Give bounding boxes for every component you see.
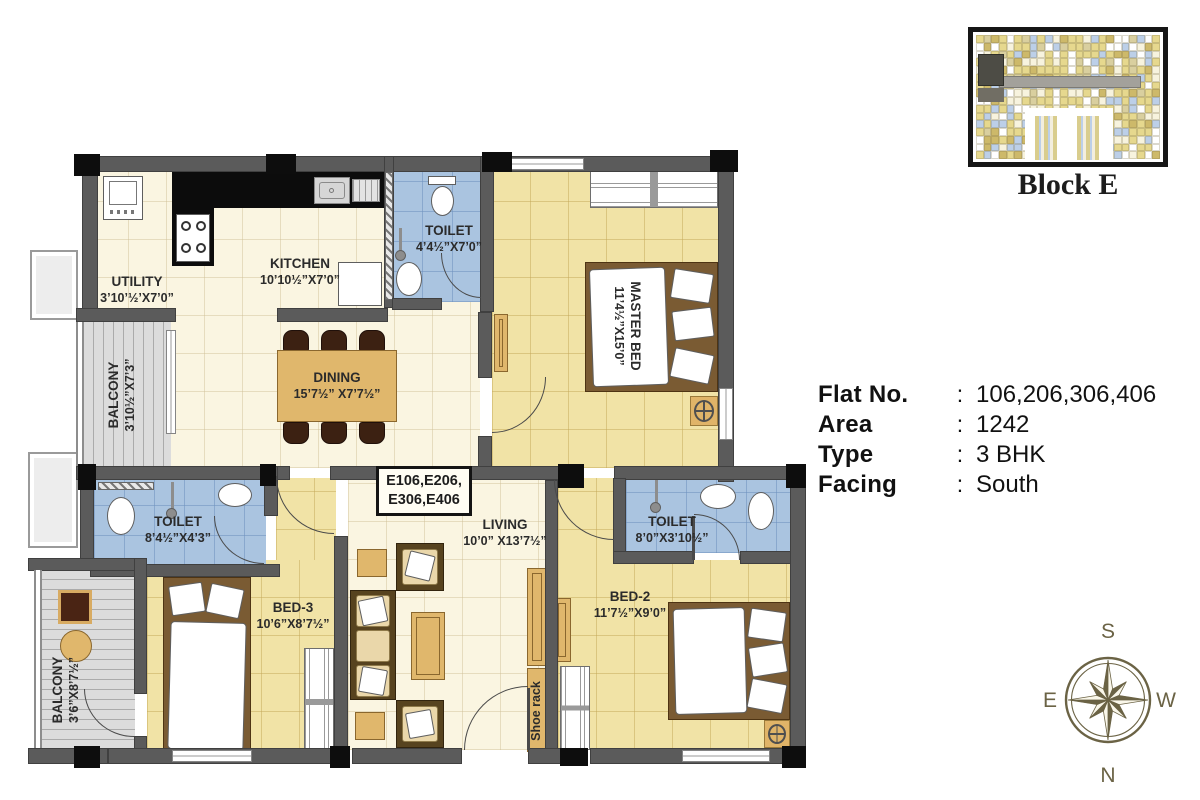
drainboard-icon (352, 179, 380, 202)
room-name: UTILITY (112, 274, 163, 291)
room-label-master-bed: MASTER BED 11’4½”X15’0” (607, 266, 647, 386)
unit-number-box: E106,E206, E306,E406 (376, 466, 472, 516)
fan-icon (690, 396, 718, 426)
column (710, 150, 738, 172)
window-ledge (28, 452, 78, 548)
window (682, 750, 770, 762)
vent-hatch (98, 482, 154, 490)
room-label-utility: UTILITY 3’10’½’X7’0” (77, 272, 197, 308)
wall (28, 558, 138, 571)
dining-chair-icon (359, 330, 385, 352)
window-ledge (30, 250, 78, 320)
room-label-kitchen: KITCHEN 10’10½”X7’0” (240, 252, 360, 292)
info-label: Facing (818, 471, 944, 499)
info-colon: : (944, 441, 976, 468)
wall (76, 156, 736, 172)
room-name: BALCONY (106, 362, 123, 429)
room-label-balcony-left: BALCONY 3’10½”X7’3” (105, 340, 139, 450)
room-dims: 8’4½”X4’3” (145, 531, 211, 547)
window (172, 750, 252, 762)
info-colon: : (944, 381, 976, 408)
wc-icon (431, 186, 454, 216)
info-colon: : (944, 411, 976, 438)
compass-rose: S E W N (1038, 608, 1178, 788)
column (74, 154, 100, 176)
column (330, 746, 350, 768)
room-dims: 4’4½”X7’0” (416, 240, 482, 256)
armchair-icon (396, 543, 444, 591)
room-name: LIVING (482, 517, 527, 534)
room-label-toilet-right: TOILET 8’0”X3’10½” (612, 512, 732, 548)
wardrobe-icon (304, 648, 334, 756)
compass-north-label: N (1100, 764, 1115, 787)
room-label-toilet-left: TOILET 8’4½”X4’3” (118, 512, 238, 548)
unit-numbers-line1: E106,E206, (386, 472, 462, 491)
dining-chair-icon (283, 422, 309, 444)
tower-wing (1077, 116, 1099, 160)
kitchen-sink-icon (314, 177, 350, 204)
room-name: TOILET (154, 514, 202, 531)
info-label: Area (818, 411, 944, 439)
coffee-table-icon (411, 612, 445, 680)
wall (76, 466, 290, 480)
room-label-living: LIVING 10’0” X13’7½” (440, 514, 570, 552)
room-dims: 10’10½”X7’0” (260, 273, 340, 289)
room-label-bed2: BED-2 11’7½”X9’0” (570, 586, 690, 624)
shoe-rack-text: Shoe rack (529, 681, 545, 741)
balcony-railing (76, 322, 84, 468)
block-title: Block E (988, 168, 1148, 202)
balcony-railing (34, 570, 42, 750)
fan-icon (764, 720, 790, 748)
unit-numbers-line2: E306,E406 (388, 491, 460, 510)
shower-icon (171, 482, 174, 510)
compass-south-label: S (1101, 620, 1115, 643)
room-dims: 3’10’½’X7’0” (100, 291, 174, 307)
room-name: BED-2 (610, 589, 651, 606)
room-name: KITCHEN (270, 256, 330, 273)
planter-icon (58, 590, 92, 624)
column (482, 152, 512, 172)
armchair-icon (396, 700, 444, 748)
tower-wing (1035, 116, 1057, 160)
wall (334, 536, 348, 760)
column (786, 464, 806, 488)
room-dims: 10’6”X8’7½” (257, 617, 330, 633)
room-name: MASTER BED (626, 281, 643, 370)
wall-shelf (494, 314, 508, 372)
info-label: Type (818, 441, 944, 469)
floorplan-page: UTILITY 3’10’½’X7’0” KITCHEN 10’10½”X7’0… (0, 0, 1200, 800)
info-value: 3 BHK (976, 441, 1163, 469)
wall (614, 466, 792, 480)
room-name: DINING (313, 370, 360, 387)
washbasin-icon (396, 262, 422, 296)
corridor-band (999, 76, 1141, 88)
info-row-facing: Facing : South (818, 471, 1163, 501)
block-site-map (968, 27, 1168, 167)
tv-unit-icon (527, 568, 547, 666)
info-row-flat-no: Flat No. : 106,206,306,406 (818, 381, 1163, 411)
room-dims: 15’7½” X7’7½” (294, 387, 381, 403)
info-row-area: Area : 1242 (818, 411, 1163, 441)
info-value: South (976, 471, 1163, 499)
info-label: Flat No. (818, 381, 944, 409)
wall (392, 298, 442, 310)
wall (478, 312, 492, 378)
room-label-toilet-top: TOILET 4’4½”X7’0” (389, 222, 509, 256)
room-label-dining: DINING 15’7½” X7’7½” (277, 364, 397, 408)
washbasin-icon (700, 484, 736, 509)
room-dims: 3’6”X8’7½” (67, 657, 83, 723)
shower-icon (655, 480, 658, 504)
wall (352, 748, 462, 764)
washing-machine-icon (103, 176, 143, 220)
room-label-bed3: BED-3 10’6”X8’7½” (233, 598, 353, 634)
compass-east-label: E (1043, 689, 1057, 712)
column (78, 464, 96, 490)
wc-tank-icon (428, 176, 456, 185)
info-value: 106,206,306,406 (976, 381, 1163, 409)
flat-info-panel: Flat No. : 106,206,306,406 Area : 1242 T… (818, 381, 1163, 501)
room-name: BALCONY (50, 657, 67, 724)
wc-icon (748, 492, 774, 530)
column (782, 746, 806, 768)
column (266, 154, 296, 174)
info-value: 1242 (976, 411, 1163, 439)
room-name: TOILET (425, 223, 473, 240)
compass-west-label: W (1156, 689, 1176, 712)
shoe-rack-label: Shoe rack (528, 669, 546, 753)
dining-chair-icon (321, 422, 347, 444)
washbasin-icon (218, 483, 252, 507)
column (560, 748, 588, 766)
wall (478, 436, 492, 470)
dining-chair-icon (321, 330, 347, 352)
wardrobe-icon (590, 170, 718, 208)
wall (613, 551, 694, 564)
wall (790, 464, 806, 764)
dining-chair-icon (283, 330, 309, 352)
sofa-icon (350, 590, 396, 700)
room-name: TOILET (648, 514, 696, 531)
room-dims: 11’7½”X9’0” (594, 606, 666, 622)
block-e-highlight (978, 88, 1004, 102)
side-table-icon (355, 712, 385, 740)
sliding-door (166, 330, 176, 434)
block-e-highlight (978, 54, 1004, 86)
wardrobe-icon (560, 666, 590, 750)
wall (277, 308, 388, 322)
wall (76, 308, 176, 322)
info-colon: : (944, 471, 976, 498)
dining-chair-icon (359, 422, 385, 444)
column (74, 746, 100, 768)
room-label-balcony-bottom: BALCONY 3’6”X8’7½” (49, 635, 83, 745)
master-bed-icon (585, 262, 718, 392)
wall (134, 558, 147, 694)
room-dims: 3’10½”X7’3” (123, 359, 139, 432)
stove-icon (176, 214, 210, 262)
info-row-type: Type : 3 BHK (818, 441, 1163, 471)
column (260, 464, 276, 486)
room-name: BED-3 (273, 600, 314, 617)
window (719, 388, 733, 440)
room-dims: 11’4½”X15’0” (611, 286, 627, 365)
side-table-icon (357, 549, 387, 577)
room-dims: 10’0” X13’7½” (463, 534, 546, 550)
wall (740, 551, 792, 564)
room-dims: 8’0”X3’10½” (636, 531, 709, 547)
